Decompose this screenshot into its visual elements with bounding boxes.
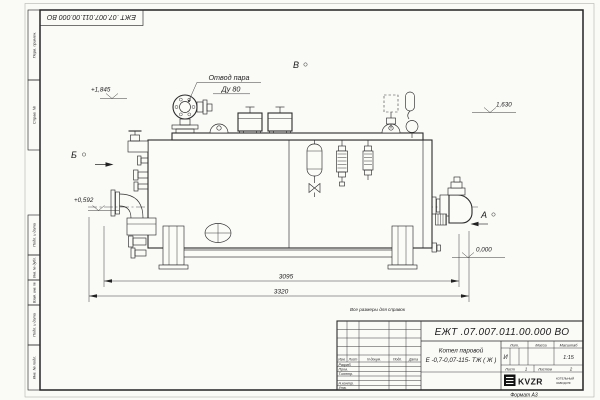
format-note: Формат А3 bbox=[510, 393, 538, 399]
safety-valve-boxes bbox=[238, 107, 292, 133]
margin-label-inv-dubl: Инв. № дубл. bbox=[33, 257, 37, 278]
top-designation-stamp: ЕЖТ .07.007.011.00.000 ВО bbox=[40, 10, 143, 26]
margin-stamp-column: Перв. примен. Справ. № Подп. и дата Инв.… bbox=[28, 10, 40, 390]
tb-row-utv: Утв. bbox=[339, 386, 347, 390]
tb-scale-value: 1:15 bbox=[563, 355, 575, 361]
margin-label-podp-data-2: Подп. и дата bbox=[33, 313, 37, 337]
elevation-top-label: +1,845 bbox=[91, 87, 111, 94]
boiler-body bbox=[148, 133, 432, 248]
tb-mass-label: Масса bbox=[535, 343, 546, 347]
tb-scale-label: Масштаб bbox=[560, 343, 579, 347]
burner bbox=[432, 177, 472, 225]
tb-col-izm: Изм. bbox=[338, 357, 345, 361]
tb-row-razrab: Разраб. bbox=[339, 363, 352, 367]
title-block: Изм. Лист N докум. Подп. Дата Разраб. Пр… bbox=[337, 321, 583, 390]
drain-nozzles bbox=[432, 243, 441, 252]
manhole bbox=[205, 224, 231, 243]
drawing-sheet: Перв. примен. Справ. № Подп. и дата Инв.… bbox=[0, 0, 600, 400]
elevation-right-label: 1,630 bbox=[496, 102, 512, 109]
view-a-label: А bbox=[480, 210, 487, 220]
callout-line1: Отвод пара bbox=[208, 73, 249, 82]
margin-label-vzam-inv: Взам. инв. № bbox=[33, 282, 37, 303]
tb-product-line2: Е -0,7-0,07-115- ТЖ ( Ж ) bbox=[426, 357, 497, 364]
dim-3320-label: 3320 bbox=[274, 289, 289, 296]
kvzr-logo-sub2: ЗАВОД.РФ bbox=[556, 381, 571, 385]
kvzr-logo-text: KVZR bbox=[518, 376, 543, 386]
margin-label-perv-primen: Перв. примен. bbox=[32, 32, 37, 59]
view-v-label: В bbox=[293, 60, 299, 70]
tb-sheets-value: 2 bbox=[569, 367, 573, 372]
tb-row-nkontr: Н.контр. bbox=[339, 381, 354, 385]
tb-lit-value: И bbox=[503, 355, 508, 361]
margin-label-podp-data-1: Подп. и дата bbox=[33, 223, 37, 247]
top-left-valve bbox=[128, 131, 148, 152]
callout-line2: Ду 80 bbox=[221, 85, 241, 94]
callout-steam-outlet: Отвод пара Ду 80 bbox=[188, 73, 261, 102]
tb-row-prov: Пров. bbox=[339, 367, 348, 371]
reference-note: Все размеры для справок bbox=[350, 307, 406, 312]
tb-product-line1: Котел паровой bbox=[439, 348, 484, 355]
tb-col-podp: Подп. bbox=[393, 357, 402, 361]
margin-label-sprav-no: Справ. № bbox=[32, 105, 37, 124]
elevation-zero-label: 0,000 bbox=[476, 247, 492, 254]
tb-sheet-value: 1 bbox=[525, 367, 527, 372]
tb-col-data: Дата bbox=[408, 357, 418, 361]
kvzr-logo: KVZR КОТЕЛЬНЫЙ ЗАВОД.РФ bbox=[504, 375, 574, 387]
tb-sheets-label: Листов bbox=[537, 368, 552, 372]
tb-designation: ЕЖТ .07.007.011.00.000 ВО bbox=[435, 327, 570, 338]
margin-label-inv-podl: Инв. № подл. bbox=[33, 356, 37, 380]
kvzr-logo-sub1: КОТЕЛЬНЫЙ bbox=[556, 377, 574, 381]
tb-row-tkontr: Т.контр. bbox=[339, 372, 354, 376]
tb-lit-label: Лит. bbox=[509, 343, 519, 347]
tb-col-list: Лист bbox=[348, 357, 358, 361]
tb-col-doc: N докум. bbox=[367, 357, 381, 361]
view-b-label: Б bbox=[71, 150, 77, 160]
elevation-mid-label: +0,592 bbox=[74, 197, 94, 204]
dim-3095-label: 3095 bbox=[279, 274, 294, 281]
steam-valve bbox=[172, 95, 212, 133]
boiler-assembly-drawing: Перв. примен. Справ. № Подп. и дата Инв.… bbox=[0, 0, 600, 400]
tb-sheet-label: Лист bbox=[504, 368, 515, 372]
top-stamp-text: ЕЖТ .07.007.011.00.000 ВО bbox=[46, 13, 136, 20]
